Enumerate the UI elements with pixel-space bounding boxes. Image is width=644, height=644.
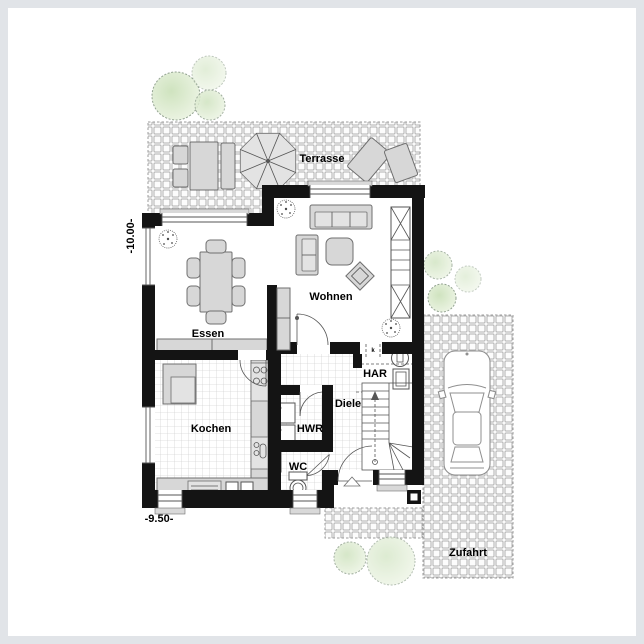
parasol [240,133,295,188]
plant [382,319,400,337]
floor-plan-page: Terrasse Wohnen Essen Kochen Diele HWR W… [0,0,644,644]
window-dining-west [142,228,155,285]
room-label-diele: Diele [335,398,361,410]
room-label-hwr: HWR [297,423,323,435]
sofa-three-seat [310,205,372,229]
wardrobe-unit [391,207,410,318]
dining-table [200,252,232,312]
dining-chair [187,258,200,278]
room-label-essen: Essen [192,328,225,340]
sideboard [157,339,267,351]
dimension-bottom: -9.50- [145,513,174,525]
entrance-path-area [325,508,423,538]
terrace-bench [221,143,235,189]
hall-cabinet [277,288,290,350]
car-top-view [438,351,495,475]
floor-plan-canvas: Terrasse Wohnen Essen Kochen Diele HWR W… [0,0,644,644]
staircase [362,383,413,470]
dimension-left: -10.00- [125,218,137,253]
har-height-marker: k [371,348,375,354]
toilet-tank [289,472,307,480]
room-label-kochen: Kochen [191,423,232,435]
coffee-table [326,238,353,265]
dining-chair [187,286,200,306]
dining-chair [232,286,245,306]
plant [277,200,295,218]
room-label-zufahrt: Zufahrt [449,547,487,559]
room-label-har: HAR [363,368,387,380]
window-living-north [308,181,372,198]
window-kitchen-south [155,490,185,514]
room-label-wohnen: Wohnen [309,291,352,303]
door-living-hall [295,314,330,354]
terrace-chair [173,146,188,164]
room-label-terrasse: Terrasse [299,153,344,165]
dining-chair [206,240,226,253]
cooktop-counter [251,360,268,480]
terrace-table [190,142,218,190]
side-table [346,262,374,290]
window-wc-south [290,490,320,514]
entrance-step-marker [344,477,360,486]
dining-chair [232,258,245,278]
fridge-unit [163,364,196,404]
window-stair-south [377,470,407,491]
window-dining-north [160,209,249,226]
room-label-wc: WC [289,461,307,473]
plant [159,230,177,248]
dining-chair [206,311,226,324]
window-kitchen-west [142,407,155,463]
sofa-two-seat [296,235,318,275]
terrace-chair [173,169,188,187]
